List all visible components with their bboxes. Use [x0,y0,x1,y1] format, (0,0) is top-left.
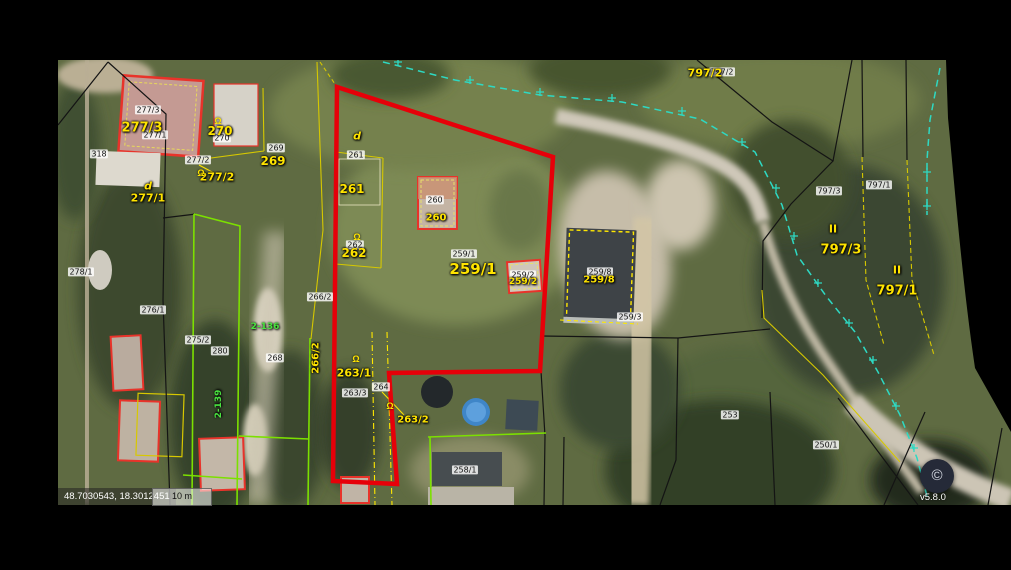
copyright-button[interactable]: © [920,459,954,493]
map-viewer: 318277/3277/1270277/2269278/1276/1275/22… [0,0,1011,570]
scale-bar: 10 m [152,488,212,506]
aerial-imagery[interactable] [0,0,1011,570]
version-label: v5.8.0 [920,492,946,503]
